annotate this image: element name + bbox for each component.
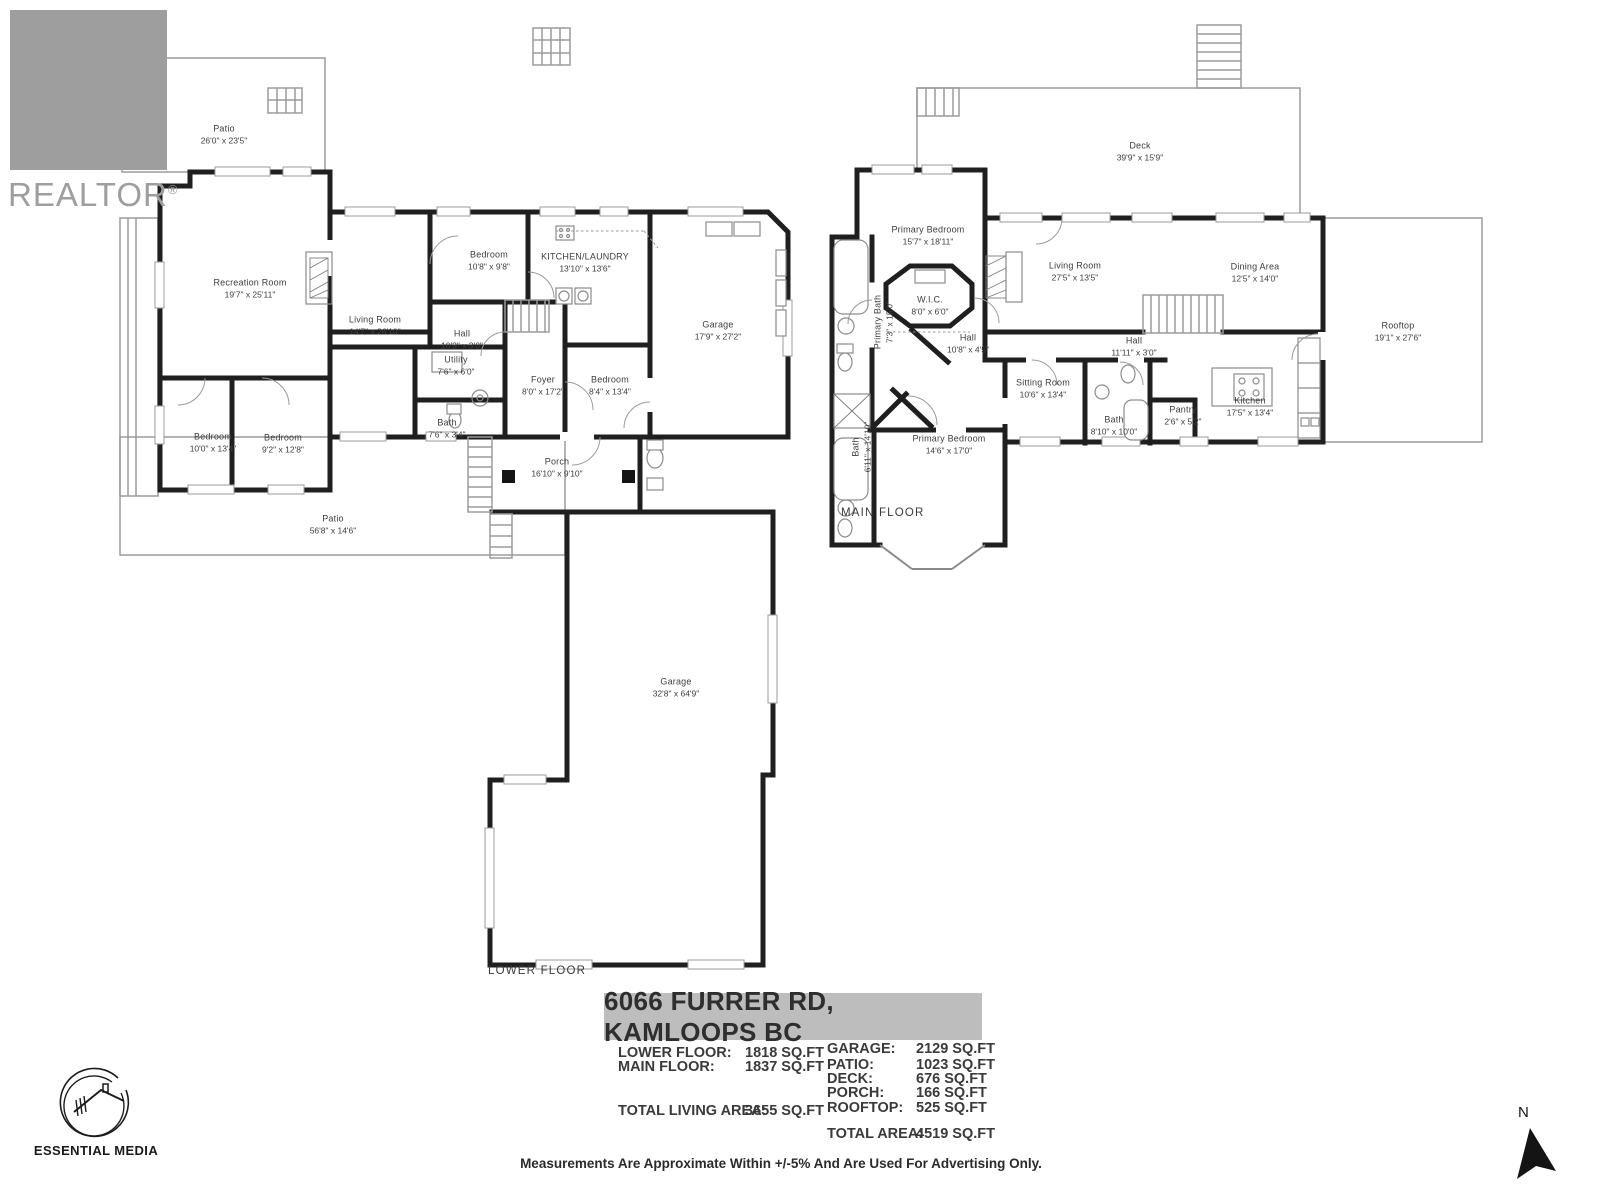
realtor-wordmark: REALTOR®: [8, 176, 178, 214]
room-name: Living Room: [1049, 261, 1101, 273]
summary-label-garage: GARAGE:: [827, 1041, 895, 1057]
floor-plan-page: { "branding": { "realtor_wordmark": "REA…: [0, 0, 1600, 1200]
summary-value-main-floor: 1837 SQ.FT: [745, 1059, 824, 1075]
room-name: W.I.C.: [911, 295, 948, 307]
room-name: Hall: [947, 333, 989, 345]
room-name: Bedroom: [190, 432, 237, 444]
room-dims: 7'6" x 3'4": [428, 429, 465, 440]
room-label-hall-main-1: Hall 10'8" x 4'5": [947, 333, 989, 356]
room-dims: 10'8" x 9'8": [468, 261, 510, 272]
room-label-primary-bedroom-2: Primary Bedroom 14'6" x 17'0": [912, 434, 985, 457]
room-name: Primary Bedroom: [912, 434, 985, 446]
summary-value-garage: 2129 SQ.FT: [916, 1041, 995, 1057]
room-label-bedroom-1: Bedroom 10'8" x 9'8": [468, 250, 510, 273]
lower-floor-title: LOWER FLOOR: [488, 965, 586, 977]
room-label-pantry: Pantry 2'6" x 5'2": [1164, 405, 1201, 428]
room-dims: 19'7" x 25'11": [213, 289, 286, 300]
room-name: Dining Area: [1231, 262, 1280, 274]
north-label: N: [1518, 1104, 1529, 1121]
room-dims: 14'6" x 17'0": [912, 445, 985, 456]
room-name: Hall: [441, 329, 483, 341]
room-label-utility: Utility 7'6" x 6'0": [437, 355, 474, 378]
room-dims: 32'8" x 64'9": [653, 688, 700, 699]
room-name: Sitting Room: [1016, 378, 1070, 390]
room-dims: 10'0" x 13'4": [190, 443, 237, 454]
room-name: Bath: [851, 422, 863, 473]
room-label-bedroom-2: Bedroom 8'4" x 13'4": [589, 375, 631, 398]
room-dims: 13'10" x 13'6": [541, 263, 629, 274]
essential-media-logo-icon: [60, 1068, 128, 1136]
room-label-recreation-room: Recreation Room 19'7" x 25'11": [213, 278, 286, 301]
realtor-wordmark-text: REALTOR: [8, 176, 168, 213]
room-dims: 56'8" x 14'6": [310, 525, 357, 536]
room-label-primary-bedroom-1: Primary Bedroom 15'7" x 18'11": [891, 225, 964, 248]
room-label-porch: Porch 16'10" x 9'10": [531, 457, 582, 480]
room-label-kitchen: Kitchen 17'5" x 13'4": [1227, 396, 1274, 419]
room-label-bath-main-1: Bath 8'10" x 10'0": [1091, 415, 1138, 438]
summary-label-porch: PORCH:: [827, 1085, 884, 1101]
summary-label-main-floor: MAIN FLOOR:: [618, 1059, 715, 1075]
room-label-dining-area: Dining Area 12'5" x 14'0": [1231, 262, 1280, 285]
room-dims: 7'3" x 15'0": [884, 295, 895, 349]
summary-value-rooftop: 525 SQ.FT: [916, 1100, 987, 1116]
room-dims: 9'2" x 12'8": [262, 444, 304, 455]
room-name: Garage: [695, 320, 742, 332]
room-name: Foyer: [522, 375, 564, 387]
room-name: Bedroom: [262, 433, 304, 445]
room-name: Bath: [1091, 415, 1138, 427]
room-dims: 6'11" x 14'10": [862, 422, 873, 473]
room-label-kitchen-laundry: KITCHEN/LAUNDRY 13'10" x 13'6": [541, 252, 629, 275]
room-label-primary-bath: Primary Bath 7'3" x 15'0": [873, 295, 896, 349]
realtor-logo-block: [10, 10, 167, 170]
room-label-rooftop: Rooftop 19'1" x 27'6": [1375, 321, 1422, 344]
address-banner: 6066 FURRER RD, KAMLOOPS BC: [604, 993, 982, 1040]
room-label-garage-upper: Garage 17'9" x 27'2": [695, 320, 742, 343]
room-label-hall-lower: Hall 10'3" x 3'0": [441, 329, 483, 352]
room-dims: 2'6" x 5'2": [1164, 416, 1201, 427]
room-dims: 10'6" x 13'4": [1016, 389, 1070, 400]
room-dims: 15'7" x 18'11": [891, 236, 964, 247]
room-dims: 19'1" x 27'6": [1375, 332, 1422, 343]
room-name: Utility: [437, 355, 474, 367]
room-name: KITCHEN/LAUNDRY: [541, 252, 629, 264]
room-dims: 26'0" x 23'5": [201, 135, 248, 146]
room-name: Pantry: [1164, 405, 1201, 417]
room-label-bedroom-4: Bedroom 9'2" x 12'8": [262, 433, 304, 456]
room-dims: 10'3" x 3'0": [441, 340, 483, 351]
room-label-living-room-lower: Living Room 14'7" x 26'10": [349, 315, 401, 338]
room-dims: 39'9" x 15'9": [1117, 152, 1164, 163]
room-name: Patio: [310, 514, 357, 526]
summary-value-total-area: 4519 SQ.FT: [916, 1126, 995, 1142]
room-label-bath-main-2: Bath 6'11" x 14'10": [851, 422, 874, 473]
room-name: Bedroom: [589, 375, 631, 387]
room-dims: 8'10" x 10'0": [1091, 426, 1138, 437]
room-name: Deck: [1117, 141, 1164, 153]
room-dims: 27'5" x 13'5": [1049, 272, 1101, 283]
thin-outlines: [120, 25, 1482, 555]
north-arrow-icon: [1517, 1128, 1556, 1179]
room-label-bedroom-3: Bedroom 10'0" x 13'4": [190, 432, 237, 455]
room-name: Bath: [428, 418, 465, 430]
room-label-patio-upper: Patio 26'0" x 23'5": [201, 124, 248, 147]
room-dims: 16'10" x 9'10": [531, 468, 582, 479]
media-credit-label: ESSENTIAL MEDIA: [20, 1143, 172, 1158]
room-label-patio-long: Patio 56'8" x 14'6": [310, 514, 357, 537]
room-dims: 14'7" x 26'10": [349, 326, 401, 337]
room-name: Bedroom: [468, 250, 510, 262]
room-label-garage-big: Garage 32'8" x 64'9": [653, 677, 700, 700]
main-floor-title: MAIN FLOOR: [841, 507, 925, 519]
room-label-bath-lower: Bath 7'6" x 3'4": [428, 418, 465, 441]
registered-mark: ®: [168, 182, 179, 197]
room-dims: 17'9" x 27'2": [695, 331, 742, 342]
room-name: Living Room: [349, 315, 401, 327]
room-name: Primary Bath: [873, 295, 885, 349]
room-name: Garage: [653, 677, 700, 689]
room-name: Recreation Room: [213, 278, 286, 290]
disclaimer-text: Measurements Are Approximate Within +/-5…: [481, 1156, 1081, 1171]
room-label-deck: Deck 39'9" x 15'9": [1117, 141, 1164, 164]
room-dims: 8'4" x 13'4": [589, 386, 631, 397]
room-name: Porch: [531, 457, 582, 469]
room-dims: 12'5" x 14'0": [1231, 273, 1280, 284]
room-dims: 10'8" x 4'5": [947, 344, 989, 355]
room-label-foyer: Foyer 8'0" x 17'2": [522, 375, 564, 398]
room-dims: 17'5" x 13'4": [1227, 407, 1274, 418]
room-label-wic: W.I.C. 8'0" x 6'0": [911, 295, 948, 318]
room-dims: 8'0" x 17'2": [522, 386, 564, 397]
room-name: Kitchen: [1227, 396, 1274, 408]
room-name: Rooftop: [1375, 321, 1422, 333]
summary-label-rooftop: ROOFTOP:: [827, 1100, 903, 1116]
summary-value-total-living: 3655 SQ.FT: [745, 1103, 824, 1119]
room-label-sitting-room: Sitting Room 10'6" x 13'4": [1016, 378, 1070, 401]
room-dims: 8'0" x 6'0": [911, 306, 948, 317]
room-dims: 11'11" x 3'0": [1111, 347, 1156, 358]
summary-label-total-area: TOTAL AREA:: [827, 1126, 923, 1142]
room-label-living-room-main: Living Room 27'5" x 13'5": [1049, 261, 1101, 284]
room-name: Primary Bedroom: [891, 225, 964, 237]
room-name: Patio: [201, 124, 248, 136]
room-dims: 7'6" x 6'0": [437, 366, 474, 377]
summary-value-porch: 166 SQ.FT: [916, 1085, 987, 1101]
room-label-hall-main-2: Hall 11'11" x 3'0": [1111, 336, 1156, 359]
room-name: Hall: [1111, 336, 1156, 348]
